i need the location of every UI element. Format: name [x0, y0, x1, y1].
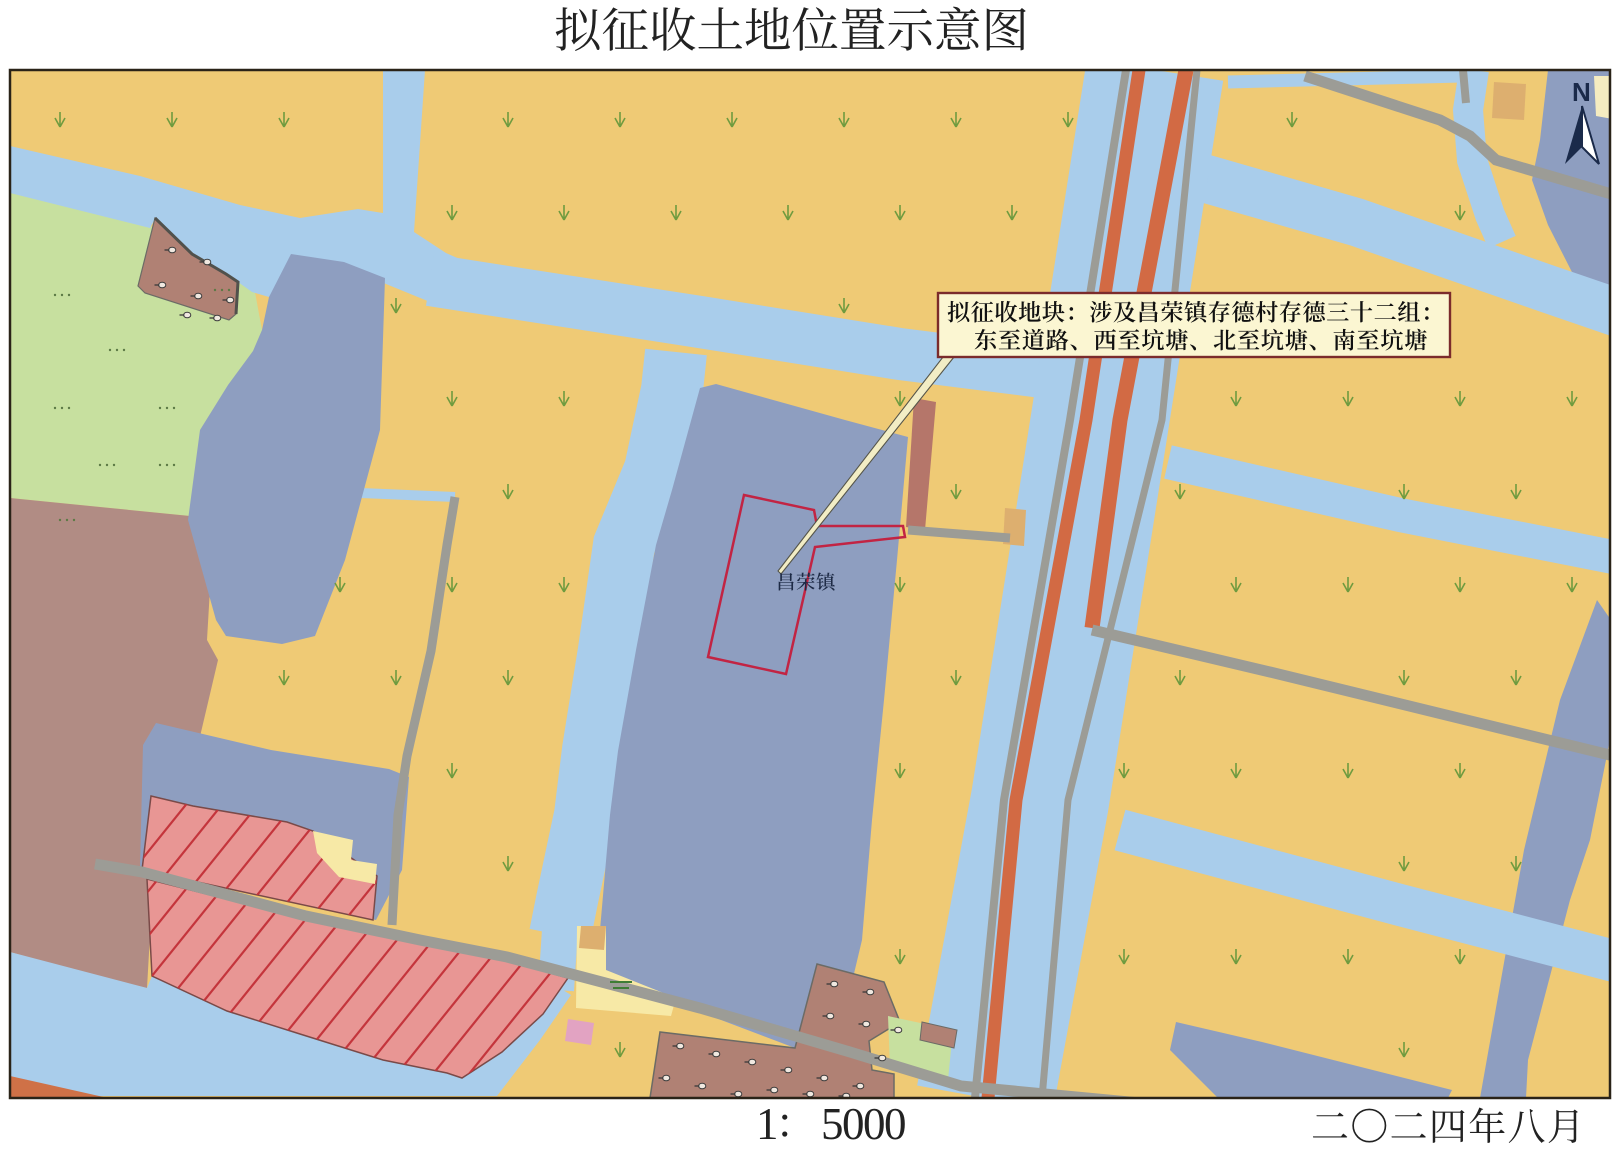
svg-text:5000: 5000: [821, 1099, 905, 1149]
svg-text:1: 1: [756, 1099, 779, 1149]
svg-text:N: N: [1572, 77, 1591, 107]
